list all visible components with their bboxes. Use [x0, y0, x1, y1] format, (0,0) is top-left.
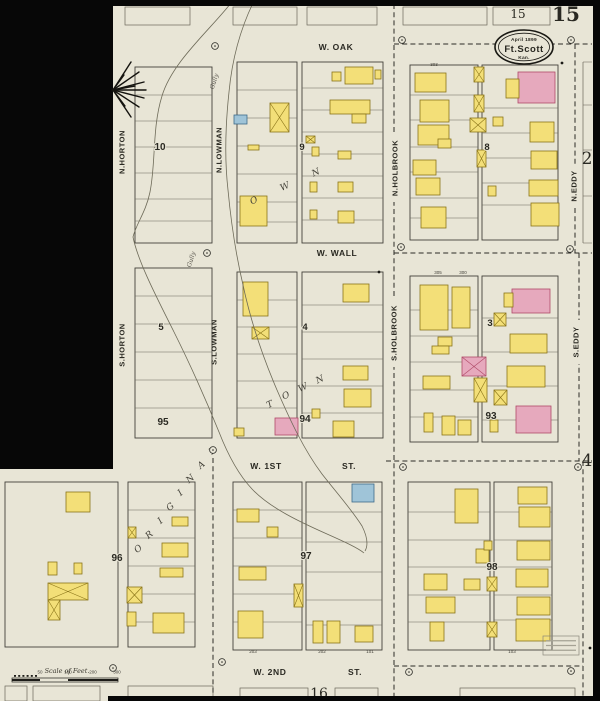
frame-building — [507, 366, 545, 387]
scale-subdivision-tick — [31, 675, 33, 677]
map-dot — [589, 647, 592, 650]
map-canvas: ORIGINALTOWNOWNGullyGully W. OAKW. WALLW… — [0, 0, 600, 701]
block-number: 5 — [158, 322, 164, 333]
frame-building — [375, 70, 381, 79]
frame-building — [344, 389, 371, 407]
frame-building — [476, 549, 489, 563]
block-number: 98 — [486, 562, 498, 573]
frame-building — [458, 420, 471, 435]
street-label-vertical: N.LOWMAN — [215, 127, 224, 173]
survey-marker-dot — [212, 449, 214, 451]
lot-dimension-number: 101 — [366, 649, 374, 654]
scale-subdivision-tick — [27, 675, 29, 677]
brick-building — [275, 418, 298, 435]
frame-building — [452, 287, 470, 328]
title-city: Ft.Scott — [504, 44, 544, 55]
frame-building — [74, 563, 82, 574]
frame-building — [426, 597, 455, 613]
survey-marker-dot — [214, 45, 216, 47]
frame-building — [420, 285, 448, 330]
frame-building — [504, 293, 513, 307]
brick-building — [518, 72, 555, 103]
scale-tick-number: 200 — [89, 670, 97, 675]
frame-building — [162, 543, 188, 557]
scale-tick-number: 50 — [37, 670, 43, 675]
lot-dimension-number: 103 — [508, 649, 516, 654]
frame-building — [430, 622, 444, 641]
frame-building — [516, 569, 548, 587]
survey-marker-dot — [577, 466, 579, 468]
frame-building — [424, 574, 447, 590]
scale-bar-segment — [12, 679, 40, 681]
frame-building — [421, 207, 446, 228]
map-dot — [378, 271, 381, 274]
frame-building — [239, 567, 266, 580]
scan-black-mask — [593, 0, 600, 701]
block-number: 97 — [300, 551, 312, 562]
map-dot — [561, 62, 564, 65]
block-number: 10 — [154, 142, 166, 153]
scale-subdivision-tick — [18, 675, 20, 677]
scan-black-mask — [0, 0, 600, 6]
frame-building — [516, 619, 550, 641]
frame-building — [237, 509, 259, 522]
frame-building — [333, 421, 354, 437]
brick-building — [516, 406, 551, 433]
block-number: 93 — [485, 411, 497, 422]
frame-building — [338, 151, 351, 159]
special-building — [352, 484, 374, 502]
frame-building — [510, 334, 547, 353]
street-label: W. WALL — [317, 248, 358, 258]
special-building — [234, 115, 247, 124]
lot-dimension-number: 300 — [459, 270, 467, 275]
frame-building — [313, 621, 323, 643]
frame-building — [338, 182, 353, 192]
frame-building — [160, 568, 183, 577]
frame-building — [48, 562, 57, 575]
frame-building — [423, 376, 450, 389]
street-label-vertical: S.LOWMAN — [210, 319, 219, 365]
block-number: 3 — [487, 318, 492, 329]
street-label: W. 1ST — [250, 461, 282, 471]
street-label: ST. — [348, 667, 362, 677]
frame-building — [267, 527, 278, 537]
frame-building — [332, 72, 341, 81]
brick-building — [512, 289, 550, 313]
street-label: ST. — [342, 461, 356, 471]
frame-building — [493, 117, 503, 126]
survey-marker-dot — [400, 246, 402, 248]
block-number: 95 — [157, 417, 169, 428]
frame-building — [234, 428, 244, 436]
block-number: 96 — [111, 553, 123, 564]
frame-building — [517, 541, 550, 560]
survey-marker-dot — [221, 661, 223, 663]
frame-building — [517, 597, 550, 615]
frame-building — [464, 579, 480, 590]
street-label-vertical: S.HOLBROOK — [390, 305, 399, 361]
block-number: 4 — [302, 322, 308, 333]
frame-building — [338, 211, 354, 223]
frame-building — [153, 613, 184, 633]
frame-building — [484, 541, 492, 550]
street-label-vertical: N.EDDY — [570, 170, 579, 201]
scale-subdivision-tick — [22, 675, 24, 677]
frame-building — [438, 139, 451, 148]
frame-building — [413, 160, 436, 175]
scan-black-mask — [108, 696, 600, 701]
survey-marker-dot — [206, 252, 208, 254]
survey-marker-dot — [570, 39, 572, 41]
street-label-vertical: S.EDDY — [572, 327, 581, 358]
block-number: 9 — [299, 142, 304, 153]
street-label-vertical: S.HORTON — [118, 323, 127, 366]
frame-building — [330, 100, 370, 114]
starburst-center — [111, 88, 114, 91]
frame-building — [531, 151, 557, 169]
frame-building — [531, 203, 559, 226]
frame-building — [519, 507, 550, 527]
lot-dimension-number: 202 — [318, 649, 326, 654]
frame-building — [343, 284, 369, 302]
frame-building — [424, 413, 433, 432]
frame-building — [488, 186, 496, 196]
frame-building — [518, 487, 547, 504]
street-label-vertical: N.HOLBROOK — [391, 140, 400, 196]
frame-building — [529, 180, 558, 196]
lot-dimension-number: 303 — [430, 62, 438, 67]
survey-marker-dot — [570, 670, 572, 672]
frame-building — [312, 409, 320, 418]
frame-building — [312, 147, 319, 156]
margin-corner-number: 4 — [582, 451, 593, 471]
title-date: April 1899 — [511, 37, 537, 43]
frame-building — [345, 67, 373, 84]
frame-building — [172, 517, 188, 526]
street-label: W. OAK — [319, 42, 354, 52]
margin-corner-number: 2 — [582, 149, 593, 169]
sanborn-map-sheet: ORIGINALTOWNOWNGullyGully W. OAKW. WALLW… — [0, 0, 600, 701]
frame-building — [530, 122, 554, 142]
scale-tick-number: 300 — [113, 670, 121, 675]
frame-building — [442, 416, 455, 435]
block-number: 8 — [484, 142, 489, 153]
street-label-vertical: N.HORTON — [118, 130, 127, 174]
title-oval: April 1899 Ft.Scott Kan. — [495, 30, 553, 64]
lot-dimension-number: 203 — [249, 649, 257, 654]
scale-subdivision-tick — [14, 675, 16, 677]
survey-marker-dot — [402, 466, 404, 468]
survey-marker-dot — [408, 671, 410, 673]
frame-building — [416, 178, 440, 195]
frame-building — [432, 346, 449, 354]
frame-building — [352, 114, 366, 123]
scan-black-mask — [0, 0, 113, 469]
frame-building — [310, 182, 317, 192]
scale-subdivision-tick — [35, 675, 37, 677]
scale-tick-number: 100 — [64, 670, 72, 675]
adjacent-sheet-number-top: 15 — [510, 7, 525, 21]
survey-marker-dot — [401, 39, 403, 41]
scale-bar-segment — [68, 679, 118, 681]
frame-building — [343, 366, 368, 380]
frame-building — [415, 73, 446, 92]
frame-building — [420, 100, 449, 122]
street-label: W. 2ND — [254, 667, 287, 677]
frame-building — [310, 210, 317, 219]
frame-building — [127, 612, 136, 626]
frame-building — [455, 489, 478, 523]
survey-marker-dot — [569, 248, 571, 250]
title-state: Kan. — [518, 55, 530, 61]
frame-building — [327, 621, 340, 643]
frame-building — [438, 337, 452, 346]
frame-building — [238, 611, 263, 638]
frame-building — [243, 282, 268, 316]
frame-building — [248, 145, 259, 150]
lot-dimension-number: 305 — [434, 270, 442, 275]
frame-building — [355, 626, 373, 642]
frame-building — [66, 492, 90, 512]
frame-building — [506, 79, 519, 98]
block-number: 94 — [299, 414, 311, 425]
